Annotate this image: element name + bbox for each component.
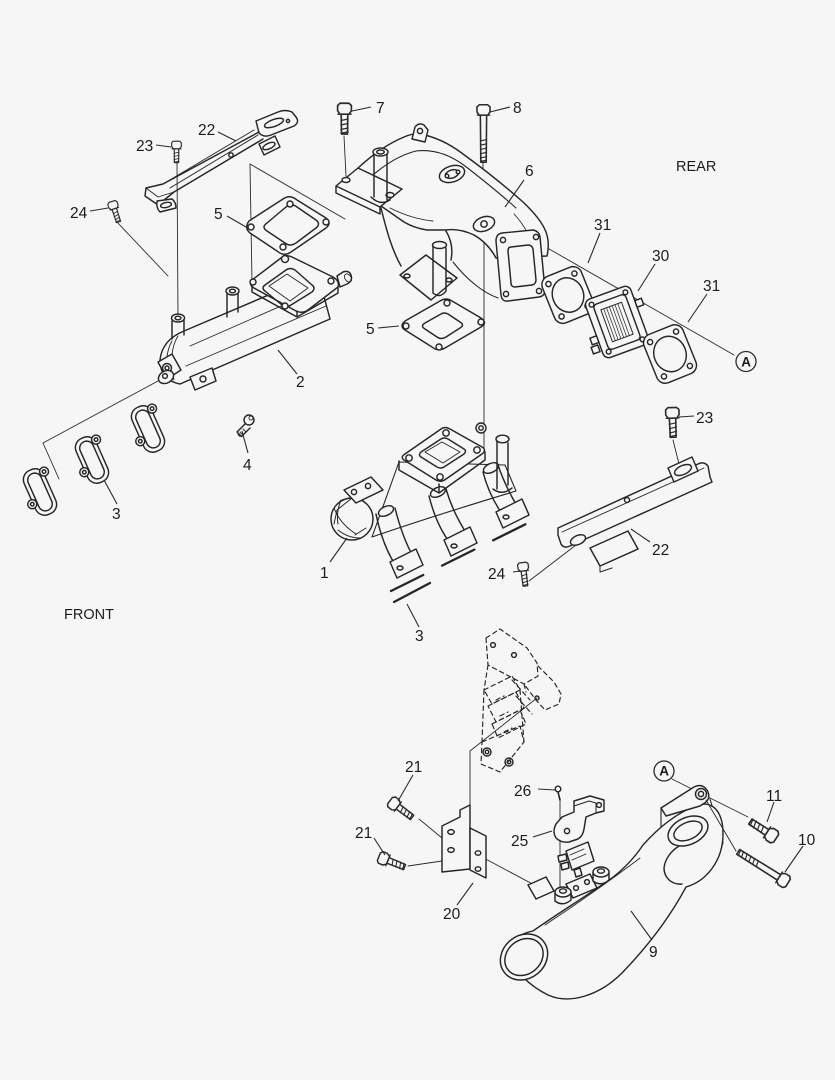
svg-text:24: 24 <box>488 566 506 583</box>
svg-text:5: 5 <box>214 206 223 223</box>
svg-text:22: 22 <box>198 122 215 139</box>
svg-text:21: 21 <box>355 825 372 842</box>
svg-text:25: 25 <box>511 833 528 850</box>
svg-text:6: 6 <box>525 163 534 180</box>
svg-text:REAR: REAR <box>676 159 716 175</box>
svg-text:8: 8 <box>513 100 522 117</box>
svg-text:3: 3 <box>415 628 424 645</box>
svg-text:20: 20 <box>443 906 461 923</box>
svg-text:A: A <box>741 355 751 370</box>
svg-text:9: 9 <box>649 944 658 961</box>
svg-text:1: 1 <box>320 565 329 582</box>
svg-text:30: 30 <box>652 248 670 265</box>
svg-text:24: 24 <box>70 205 88 222</box>
svg-text:11: 11 <box>766 788 782 805</box>
svg-text:5: 5 <box>366 321 375 338</box>
svg-text:22: 22 <box>652 542 669 559</box>
svg-text:26: 26 <box>514 783 531 800</box>
svg-text:4: 4 <box>243 457 252 474</box>
svg-text:A: A <box>659 764 669 779</box>
svg-text:3: 3 <box>112 506 121 523</box>
svg-text:23: 23 <box>696 410 713 427</box>
svg-text:23: 23 <box>136 138 153 155</box>
svg-text:31: 31 <box>703 278 720 295</box>
svg-text:2: 2 <box>296 374 305 391</box>
svg-text:31: 31 <box>594 217 611 234</box>
svg-text:7: 7 <box>376 100 385 117</box>
svg-text:10: 10 <box>798 832 816 849</box>
svg-text:FRONT: FRONT <box>64 607 114 623</box>
svg-text:21: 21 <box>405 759 422 776</box>
